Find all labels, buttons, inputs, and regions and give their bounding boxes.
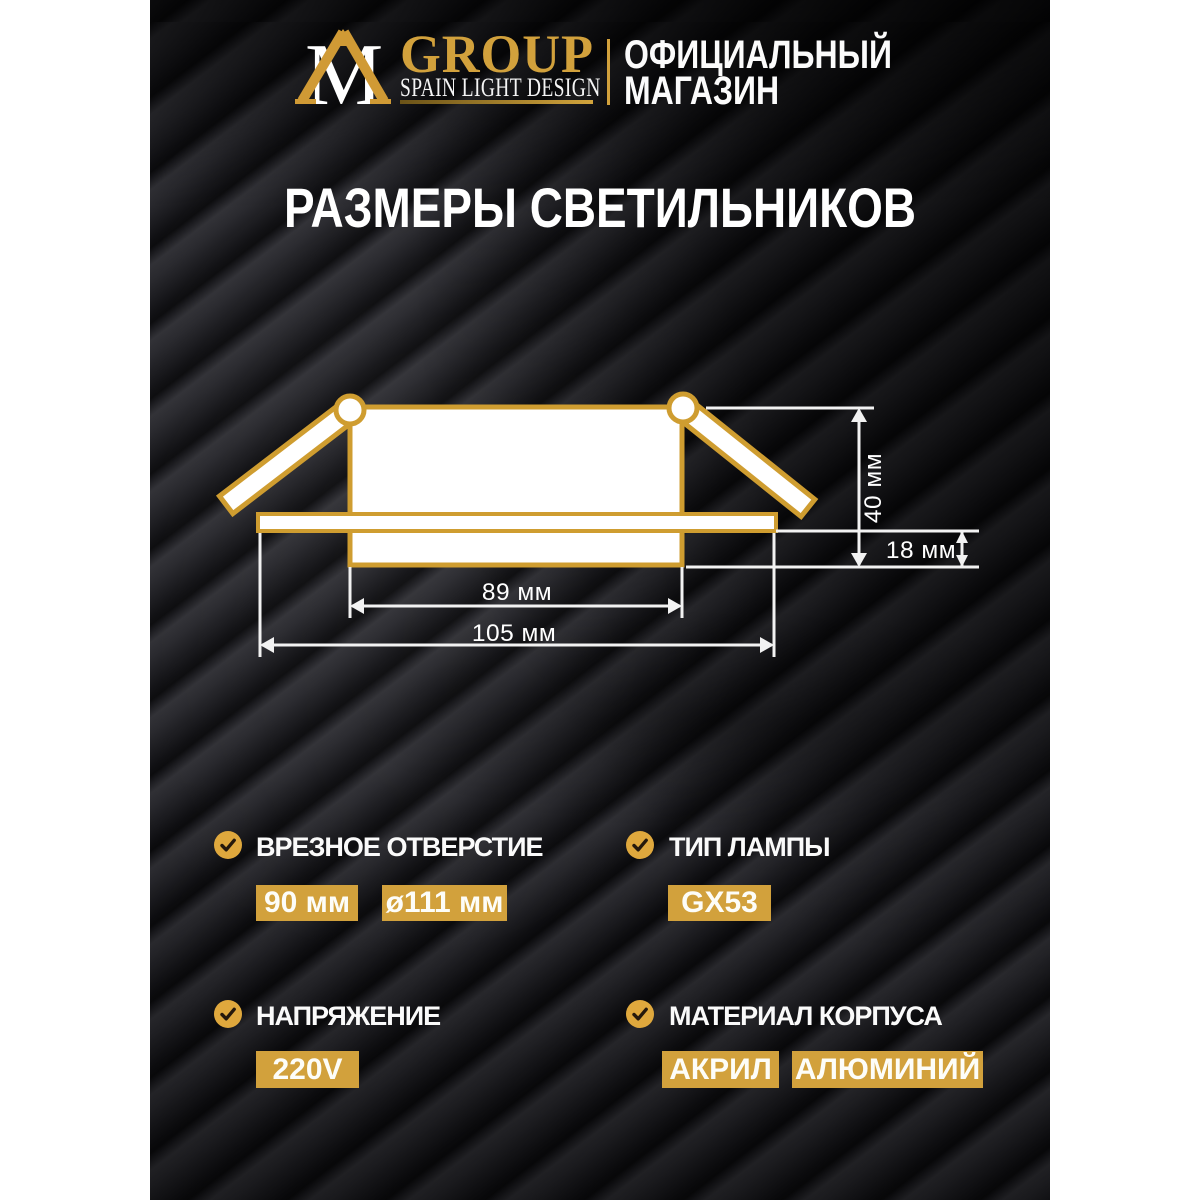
svg-text:40 мм: 40 мм — [860, 453, 887, 523]
svg-text:18 мм: 18 мм — [886, 537, 956, 564]
svg-text:105 мм: 105 мм — [472, 620, 556, 647]
svg-text:89 мм: 89 мм — [482, 579, 552, 606]
